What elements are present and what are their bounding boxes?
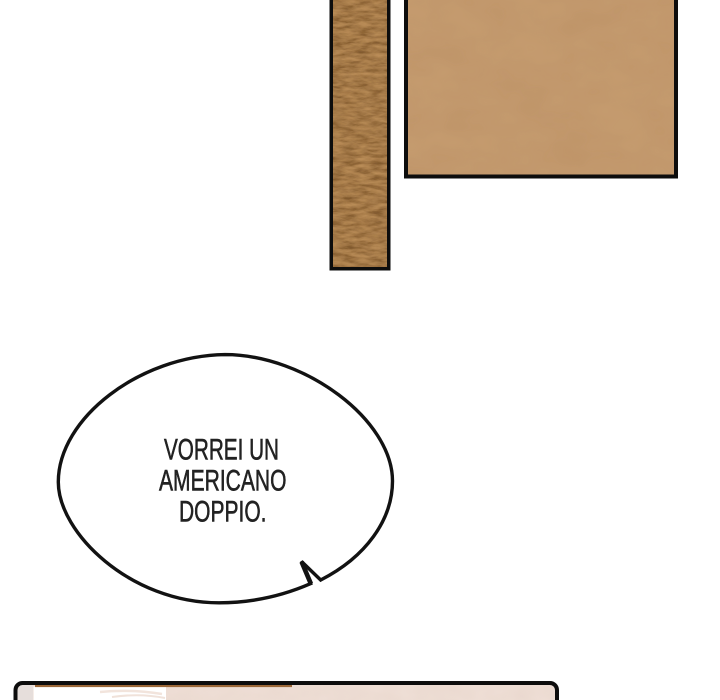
svg-text:DOPPIO.: DOPPIO. xyxy=(179,496,267,529)
svg-text:AMERICANO: AMERICANO xyxy=(159,465,287,498)
svg-text:VORREI UN: VORREI UN xyxy=(164,434,279,467)
